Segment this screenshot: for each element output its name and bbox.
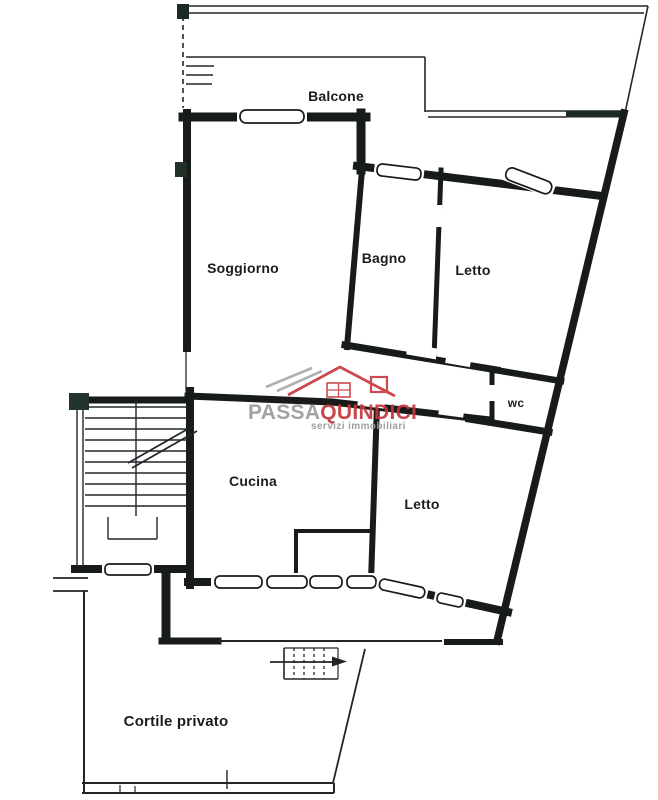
room-label-wc: wc	[508, 396, 524, 410]
floorplan-drawing	[0, 0, 658, 800]
floorplan-page: Balcone Soggiorno Bagno Letto wc Cucina …	[0, 0, 658, 800]
room-label-letto-bottom: Letto	[404, 496, 439, 512]
room-label-bagno: Bagno	[362, 250, 407, 266]
room-label-cucina: Cucina	[229, 473, 277, 489]
watermark-brand-primary: PASSA	[248, 401, 320, 424]
staircase-main	[69, 393, 197, 566]
balcony-outline	[177, 4, 648, 117]
room-label-letto-top: Letto	[455, 262, 490, 278]
watermark-tagline: servizi immobiliari	[311, 421, 406, 432]
interior-walls	[188, 170, 561, 581]
watermark-roof-icon	[266, 367, 395, 397]
room-label-soggiorno: Soggiorno	[207, 260, 279, 276]
staircase-exterior	[270, 648, 347, 679]
room-label-balcone: Balcone	[308, 88, 364, 104]
room-label-cortile: Cortile privato	[124, 713, 229, 730]
courtyard-outline	[53, 578, 442, 793]
